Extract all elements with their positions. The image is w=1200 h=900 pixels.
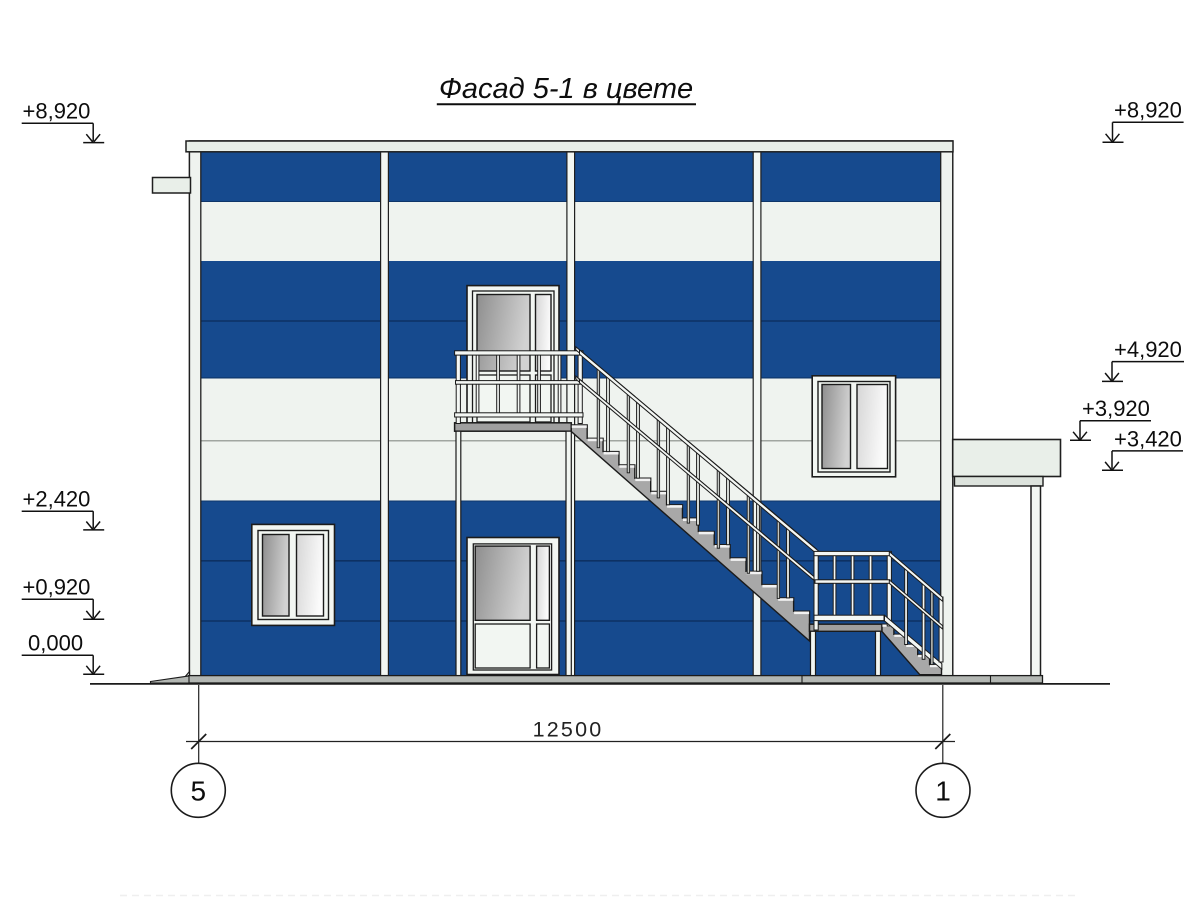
- svg-text:+2,420: +2,420: [23, 487, 91, 512]
- svg-text:12500: 12500: [533, 718, 604, 742]
- svg-text:+3,420: +3,420: [1114, 426, 1182, 451]
- svg-text:+8,920: +8,920: [1114, 98, 1182, 123]
- svg-text:+0,920: +0,920: [23, 575, 91, 600]
- svg-text:+3,920: +3,920: [1082, 396, 1150, 421]
- svg-text:5: 5: [191, 775, 207, 806]
- svg-text:0,000: 0,000: [28, 631, 83, 656]
- svg-text:1: 1: [935, 775, 951, 806]
- svg-text:Фасад 5-1 в цвете: Фасад 5-1 в цвете: [439, 73, 693, 105]
- svg-text:+8,920: +8,920: [23, 99, 91, 124]
- svg-text:+4,920: +4,920: [1114, 337, 1182, 362]
